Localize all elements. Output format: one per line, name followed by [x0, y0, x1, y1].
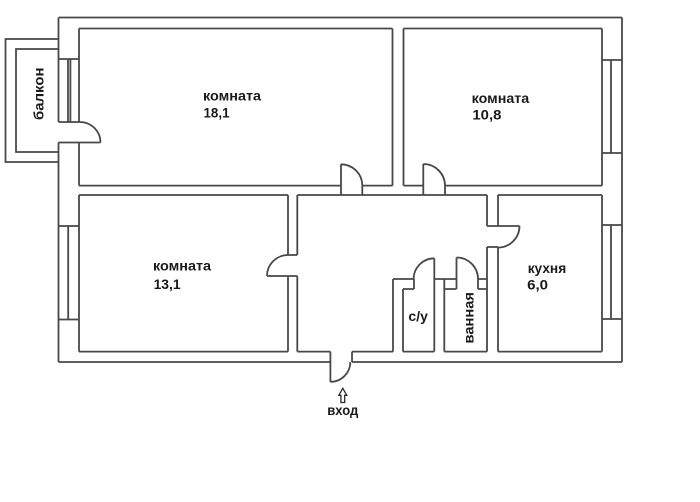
- svg-text:с/у: с/у: [408, 308, 428, 324]
- svg-text:10,8: 10,8: [472, 107, 501, 123]
- svg-text:комната: комната: [472, 90, 530, 106]
- svg-text:кухня: кухня: [528, 260, 567, 276]
- svg-text:18,1: 18,1: [204, 105, 230, 121]
- svg-text:балкон: балкон: [31, 68, 47, 121]
- svg-text:комната: комната: [153, 258, 211, 274]
- svg-text:6,0: 6,0: [527, 276, 548, 292]
- svg-text:13,1: 13,1: [154, 276, 181, 292]
- svg-text:ванная: ванная: [460, 292, 476, 344]
- svg-text:комната: комната: [203, 88, 261, 104]
- svg-text:вход: вход: [327, 402, 358, 418]
